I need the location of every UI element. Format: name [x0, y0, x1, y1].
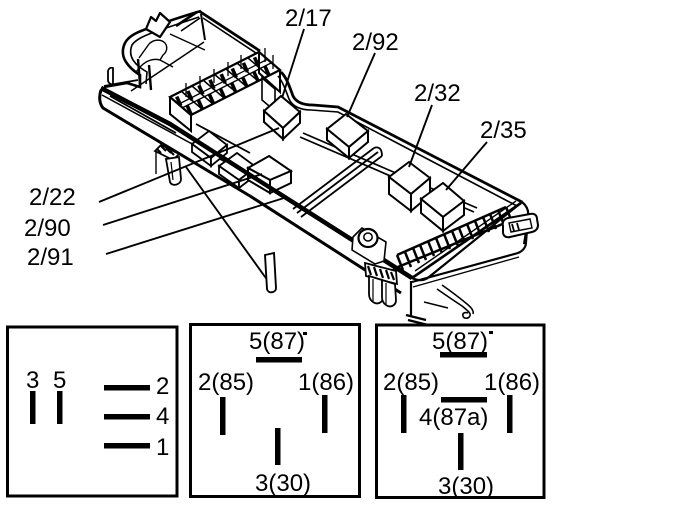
svg-text:2/32: 2/32 — [414, 80, 461, 107]
svg-text:5: 5 — [53, 367, 66, 394]
svg-text:2/35: 2/35 — [480, 117, 527, 144]
svg-text:1(86): 1(86) — [484, 369, 540, 396]
svg-text:2/91: 2/91 — [27, 244, 74, 271]
svg-text:3: 3 — [26, 367, 39, 394]
svg-text:1: 1 — [156, 434, 169, 461]
svg-text:2/92: 2/92 — [352, 29, 399, 56]
svg-text:2/17: 2/17 — [285, 5, 332, 32]
svg-text:1(86): 1(86) — [298, 369, 354, 396]
svg-text:4: 4 — [156, 403, 169, 430]
svg-text:3(30): 3(30) — [438, 473, 494, 500]
svg-text:2(85): 2(85) — [383, 369, 439, 396]
svg-text:2(85): 2(85) — [198, 369, 254, 396]
svg-text:3(30): 3(30) — [255, 470, 311, 497]
svg-text:5(87): 5(87) — [249, 328, 305, 355]
svg-text:2/90: 2/90 — [24, 215, 71, 242]
svg-text:5(87): 5(87) — [432, 328, 488, 355]
svg-text:2/22: 2/22 — [29, 184, 76, 211]
svg-text:2: 2 — [156, 373, 169, 400]
svg-text:4(87a): 4(87a) — [419, 404, 488, 431]
